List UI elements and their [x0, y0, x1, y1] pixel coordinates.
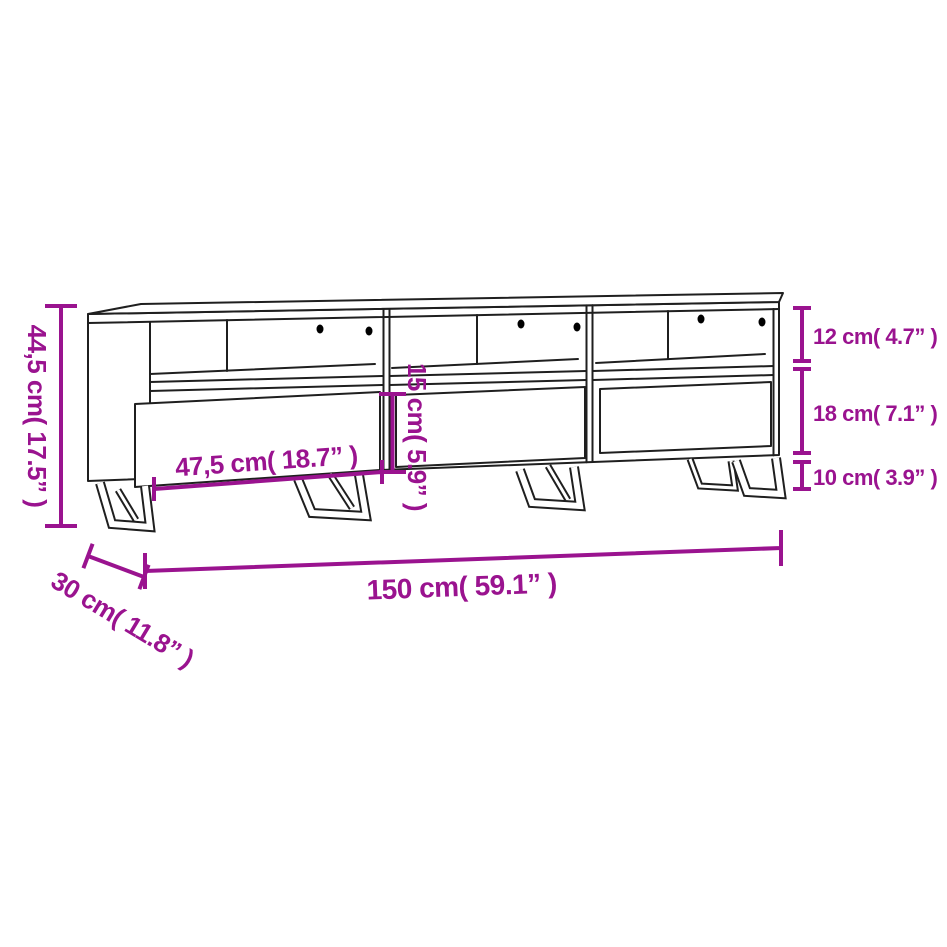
- cable-hole: [574, 323, 581, 332]
- dim-total-width: 150 cm( 59.1” ): [145, 530, 781, 606]
- cable-hole: [759, 318, 766, 327]
- dim-total-height: 44,5 cm( 17.5” ): [22, 306, 77, 526]
- dim-total-width-label: 150 cm( 59.1” ): [366, 567, 557, 605]
- dim-top-compartment-line: [793, 308, 811, 361]
- diagram-canvas: 44,5 cm( 17.5” ) 15 cm( 5.9” ) 47,5 cm( …: [0, 0, 947, 947]
- drawer-3: [600, 382, 771, 453]
- dim-leg-height-line: [793, 462, 811, 489]
- cable-hole: [317, 325, 324, 334]
- dim-drawer-height-line: [793, 369, 811, 453]
- dim-top-compartment-height: 12 cm( 4.7” ): [793, 308, 938, 361]
- cable-hole: [518, 320, 525, 329]
- dim-depth-line: [83, 544, 148, 589]
- cable-hole: [366, 327, 373, 336]
- dim-drawer-height: 18 cm( 7.1” ): [793, 369, 938, 453]
- dim-top-compartment-label: 12 cm( 4.7” ): [813, 324, 938, 349]
- tv-cabinet-drawing: [88, 293, 783, 527]
- cable-hole: [698, 315, 705, 324]
- dim-total-height-label: 44,5 cm( 17.5” ): [22, 325, 52, 508]
- dim-drawer-height-label: 18 cm( 7.1” ): [813, 401, 938, 426]
- dimension-diagram: 44,5 cm( 17.5” ) 15 cm( 5.9” ) 47,5 cm( …: [0, 0, 947, 947]
- dim-depth-label: 30 cm( 11.8” ): [46, 565, 199, 673]
- dim-leg-height: 10 cm( 3.9” ): [793, 462, 938, 490]
- dim-leg-height-label: 10 cm( 3.9” ): [813, 465, 938, 490]
- dim-depth: 30 cm( 11.8” ): [46, 544, 199, 674]
- dim-inner-height-label: 15 cm( 5.9” ): [402, 363, 432, 511]
